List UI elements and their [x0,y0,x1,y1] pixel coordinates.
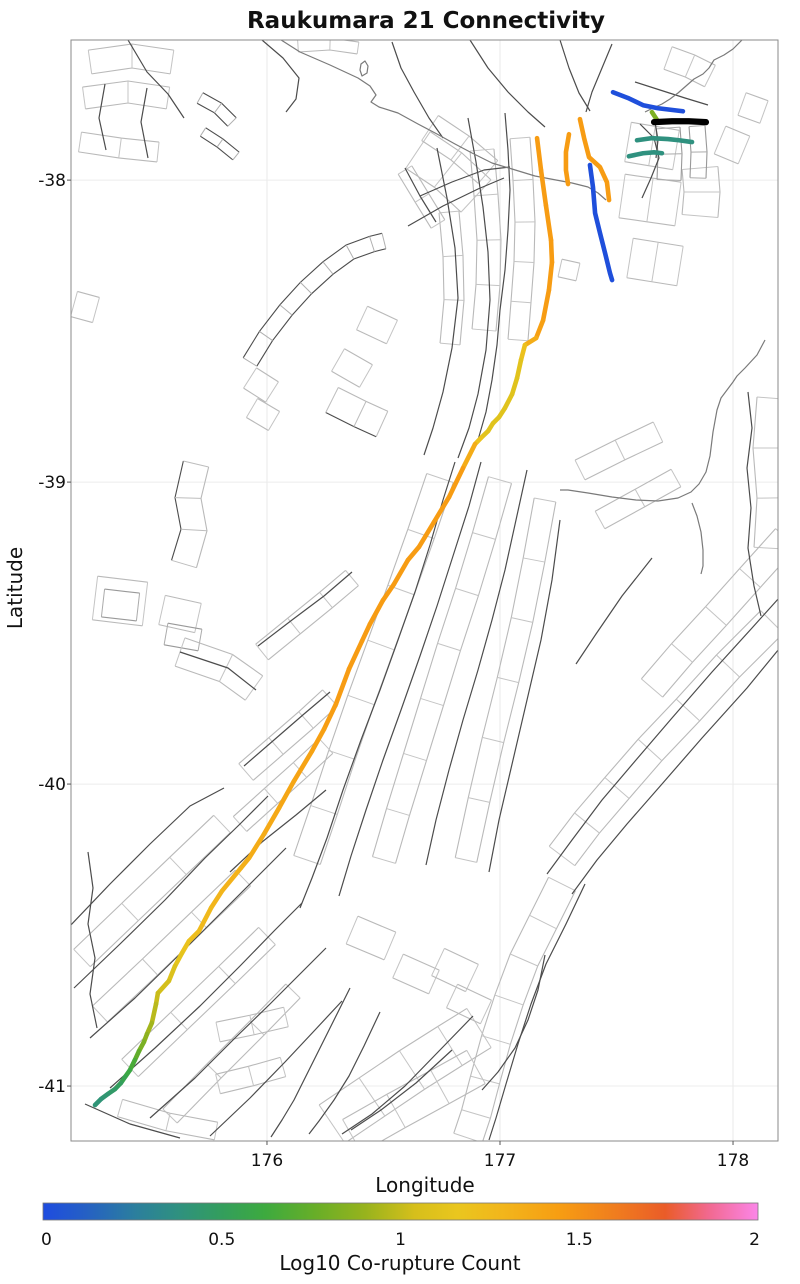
fault-strip [163,984,300,1123]
main-rupture-trace-segment [536,320,543,338]
fault-strip-rung [576,263,580,281]
fault-strip-rung [88,50,91,74]
fault-strip-rung [641,679,662,697]
x-tick-label: 178 [717,1151,749,1171]
fault-strip-rung [432,948,445,975]
fault-strip-edge [562,259,580,263]
fault-strip [454,877,576,1142]
fault-trace [258,572,352,646]
fault-strip-edge [664,69,705,86]
fault-strip-rung [534,498,556,502]
fault-trace [342,1016,473,1134]
fault-strip-rung [360,365,373,388]
fault-strip-edge [393,978,429,994]
fault-strip-rung [508,339,528,341]
fault-strip-rung [74,949,91,966]
fault-strip [88,44,173,74]
gridlines [71,40,778,1141]
fault-strip-rung [181,529,207,531]
fault-strip-rung [456,588,479,595]
main-rupture-trace-segment [370,600,383,624]
fault-strip [641,529,796,697]
colorbar-gradient [43,1203,758,1220]
fault-strip-edge [549,611,760,847]
fault-strip-rung [511,301,531,303]
fault-strip [664,47,715,87]
fault-strip-rung [615,440,625,460]
fault-strip-rung [370,236,375,251]
main-rupture-trace-segment [537,138,541,170]
fault-strip-rung [79,132,82,152]
fault-strip-rung [233,152,239,160]
fault-strip-edge [253,706,337,780]
fault-strip-rung [175,498,201,499]
fault-strip-rung [311,806,338,815]
fault-strip [175,638,263,700]
fault-strip-edge [346,944,384,960]
coastline [360,61,368,76]
fault-strip-edge [298,50,357,54]
fault-strip-edge [246,417,268,430]
fault-strip [216,1057,286,1093]
fault-strip-edge [672,47,715,66]
fault-strip-rung [676,699,699,721]
fault-strip-rung [672,644,693,663]
coastline [692,503,703,574]
fault-strip-rung [716,655,739,677]
fault-strip-edge [185,638,263,676]
fault-strip-rung [266,382,279,402]
fault-strip-rung [393,954,404,978]
fault-strip [256,570,359,659]
fault-strip-edge [216,1057,281,1074]
fault-strip-rung [510,137,530,138]
fault-trace [478,113,510,440]
fault-strip-rung [288,618,301,634]
fault-strip-rung [671,469,681,486]
fault-strip-edge [117,1117,214,1140]
fault-strip-rung [653,422,662,442]
fault-strip-rung [468,798,489,803]
rupture-orange-a [566,134,569,184]
fault-strip-edge [98,576,148,582]
fault-strip-edge [663,547,797,697]
fault-strip-edge [432,976,466,992]
main-rupture-trace-segment [517,360,521,378]
fault-strip-rung [294,855,321,864]
axis-tick-labels: 176177178-38-39-40-41 [38,171,749,1171]
fault-strip [689,125,707,178]
rupture-source-black [654,121,706,122]
rupture-teal-b-path [629,152,662,156]
fault-trace [110,903,302,1088]
fault-strip-rung [214,103,221,113]
fault-strip-edge [258,399,280,412]
fault-strip [326,387,388,436]
fault-strip [357,306,398,344]
fault-strip-edge [92,68,171,74]
fault-strip-edge [595,469,671,511]
fault-strip-edge [367,306,397,320]
fault-trace [230,790,326,872]
fault-strip-edge [746,93,768,101]
fault-strip-rung [472,329,496,331]
fault-strip-rung [776,529,797,548]
x-axis-label: Longitude [375,1173,474,1197]
fault-strip-rung [92,576,97,620]
fault-strip-rung [677,246,683,285]
fault-strip [372,477,511,864]
fault-strip-rung [638,739,662,761]
fault-strip-rung [219,966,236,983]
fault-strip-edge [332,371,360,387]
fault-trace [408,178,504,226]
fault-strip-edge [585,442,663,480]
fault-strip [122,927,276,1076]
fault-strip-rung [476,284,500,285]
fault-strip-edge [430,132,491,180]
fault-strip-edge [575,633,784,865]
main-rupture-trace-segment [543,290,549,320]
fault-strip [246,399,279,431]
x-tick-label: 177 [484,1151,516,1171]
fault-strip-rung [705,65,716,86]
fault-strip-rung [159,595,166,624]
fault-strip [79,132,160,162]
fault-strip-rung [549,877,576,890]
x-tick-label: 176 [251,1151,283,1171]
fault-trace [88,852,97,1028]
colorbar-tick-label: 0 [41,1230,52,1250]
fault-strip-edge [243,233,382,358]
fault-trace [576,558,652,664]
y-axis-label: Latitude [3,547,27,629]
fault-strip-rung [549,846,575,865]
rupture-teal-b [629,152,662,156]
fault-strip-edge [779,399,783,549]
fault-strip-rung [690,178,706,179]
fault-strip-edge [528,137,535,340]
rupture-teal-a [637,138,692,142]
rupture-olive-dash-path [652,112,657,120]
fault-strip [625,122,680,169]
fault-strip-rung [93,297,100,322]
fault-strip-edge [358,916,396,932]
fault-strip-rung [738,136,750,164]
fault-trace [635,82,708,105]
fault-strip-rung [239,764,253,781]
fault-strip-rung [119,138,122,158]
fault-strip-rung [368,640,394,650]
fault-trace [141,88,148,158]
fault-strip-rung [404,753,427,760]
main-rupture-trace-segment [521,345,525,360]
fault-strip [172,461,209,568]
fault-strip [74,815,231,966]
fault-strip-rung [117,1099,122,1116]
fault-strip-rung [332,349,345,372]
main-rupture-trace-segment [463,444,475,468]
fault-strip [619,174,681,226]
fault-strip-edge [79,152,157,162]
fault-strip-edge [138,945,275,1077]
fault-strip-edge [101,617,136,621]
fault-strip-edge [85,103,166,109]
fault-strip-rung [757,397,783,399]
fault-strip-rung [348,695,374,704]
fault-strip-rung [157,142,159,162]
y-tick-label: -40 [38,775,66,795]
fault-strip [244,368,279,402]
fault-trace [180,652,256,690]
fault-strip-rung [71,291,78,316]
fault-strip [92,576,147,626]
fault-strip-rung [216,1022,220,1042]
fault-strip [446,984,491,1024]
fault-strip-edge [361,1084,485,1153]
fault-strip-rung [706,607,727,626]
fault-strip-rung [619,174,625,218]
fault-strip-edge [605,487,681,529]
fault-strip-rung [627,238,633,277]
fault-trace [586,44,612,112]
y-tick-label: -39 [38,473,66,493]
main-rupture-trace-segment [383,584,394,600]
fault-strip-rung [197,93,203,103]
fault-strip [159,595,202,632]
fault-strip-rung [329,751,356,760]
fault-strip-rung [455,858,477,863]
fault-strip-rung [217,139,223,147]
rupture-olive-dash [652,112,657,120]
fault-strip-rung [398,166,412,174]
fault-strip-rung [219,655,232,682]
fault-strip [216,1007,288,1042]
fault-strip [346,916,396,960]
rupture-orange-a-path [566,134,569,184]
fault-strip [508,137,535,340]
fault-strip-rung [83,87,86,109]
fault-strip-rung [170,50,174,74]
fault-strip [738,93,768,124]
fault-strip-edge [244,388,266,402]
fault-strip-edge [396,483,512,863]
fault-strip-rung [635,489,645,507]
main-rupture-trace-segment [551,240,552,262]
fault-strip-rung [530,915,557,928]
fault-trace [262,40,299,112]
fault-strip-edge [90,833,230,967]
main-rupture-trace-segment [312,729,324,751]
fault-network-background [68,38,796,1153]
fault-strip-rung [462,1110,491,1118]
fault-strip-rung [510,954,538,966]
fault-strip-edge [159,625,195,633]
fault-strip-rung [183,461,208,467]
fault-strip-edge [197,103,228,126]
fault-strip-rung [595,511,605,529]
fault-trace [128,40,184,118]
fault-strip-edge [459,211,464,345]
fault-strip-rung [357,42,359,54]
rupture-teal-a-path [637,138,692,142]
fault-trace [458,118,490,458]
colorbar-tick-label: 2 [749,1230,760,1250]
fault-strip-edge [77,291,99,297]
fault-strip-rung [357,306,368,330]
fault-strip-rung [136,593,139,621]
y-tick-label: -41 [38,1077,66,1097]
fault-trace [68,788,224,928]
main-rupture-trace-segment [512,378,517,394]
fault-strip-rung [372,857,395,864]
fault-strip-edge [105,589,140,593]
fault-strip-edge [200,136,233,160]
fault-strip-edge [403,954,439,970]
fault-strip-rung [675,182,681,226]
fault-strip-rung [472,533,495,540]
fault-strip-edge [345,1048,491,1144]
fault-strip-rung [514,262,534,263]
main-rupture-trace-segment [546,205,551,240]
fault-strip-rung [575,460,585,480]
fault-strip [470,149,501,331]
fault-strip [714,126,750,164]
fault-strip-rung [268,412,279,431]
main-rupture-trace-segment [249,834,264,858]
fault-strip-rung [354,401,366,426]
fault-strip-rung [382,233,386,249]
fault-strip-rung [166,1113,170,1131]
fault-strip-rung [440,343,460,345]
fault-strip-rung [299,712,314,728]
fault-strip-rung [446,984,457,1008]
plot-border [71,40,778,1141]
fault-strip-rung [243,358,257,366]
fault-strip-rung [171,1012,188,1029]
fault-trace [747,392,761,616]
fault-strip-rung [172,560,197,567]
fault-strip-rung [384,932,396,960]
fault-strip-rung [376,411,388,436]
plot-frame [67,40,778,1145]
fault-strip-rung [467,1008,491,1047]
fault-strip-edge [558,277,576,281]
fault-strip-rung [264,789,277,804]
fault-strip-edge [458,984,492,1000]
fault-trace [470,40,545,127]
fault-strip-edge [81,132,159,142]
fault-strip-rung [244,368,257,388]
fault-strip-rung [740,569,761,588]
fault-strip [332,349,373,388]
fault-strip-rung [673,130,680,169]
fault-strip-rung [101,589,104,617]
fault-strip [117,1099,217,1139]
fault-strip-rung [387,320,398,344]
fault-strip-rung [682,215,718,218]
fault-strip [101,589,139,621]
fault-trace [271,988,350,1137]
fault-strip-rung [466,964,479,991]
fault-strip [627,238,683,285]
connectivity-map: 176177178-38-39-40-41 00.511.52 Raukumar… [0,0,800,1284]
main-rupture-trace-segment [541,170,546,205]
fault-strip-rung [431,220,445,228]
fault-strip-rung [738,93,746,116]
fault-strip-rung [443,255,463,256]
fault-strip-rung [170,857,187,874]
fault-strip-rung [495,995,523,1005]
fault-strip [200,128,239,160]
fault-strip-edge [439,213,444,343]
fault-strip-rung [714,126,726,154]
fault-strip-rung [511,618,533,623]
fault-strip-rung [300,282,311,293]
fault-strip-rung [575,813,600,833]
fault-strip-edge [123,1099,218,1122]
fault-strip-rung [477,240,501,241]
fault-strip-rung [163,1109,177,1123]
fault-strip [83,81,170,109]
fault-strip-rung [319,1105,345,1143]
main-rupture-trace-segment [549,262,552,290]
fault-strip-edge [165,595,201,603]
fault-strip-edge [641,529,775,679]
fault-strip-rung [248,1066,253,1085]
rupture-source-black-path [654,121,706,122]
main-rupture-trace-segment [211,891,222,908]
fault-strip [549,611,783,866]
fault-strip-rung [605,778,629,799]
fault-strip-rung [429,970,440,994]
fault-strip-rung [122,903,139,920]
fault-strip-edge [74,815,214,949]
rupture-north-blue-path [613,92,683,111]
fault-strip-rung [246,399,257,418]
fault-strip-rung [438,643,461,650]
fault-strip-rung [497,677,518,682]
colorbar-tick-label: 0.5 [208,1230,235,1250]
fault-strip-rung [421,698,444,705]
colorbar-label: Log10 Co-rupture Count [279,1251,520,1275]
main-rupture-trace-segment [349,641,362,669]
fault-strip-rung [444,300,464,301]
main-rupture-trace-segment [279,781,294,808]
fault-strip-edge [71,317,93,323]
fault-strip-edge [454,877,549,1133]
fault-strip-rung [166,87,169,109]
fault-trace [560,40,590,111]
main-rupture-trace-segment [152,1004,156,1023]
fault-trace [339,462,481,896]
fault-strip-rung [760,101,768,124]
fault-trace [482,955,545,1090]
fault-strip-edge [177,998,300,1123]
fault-strip-edge [726,126,750,136]
fault-strip [243,233,386,366]
fault-strip [558,259,580,281]
fault-strip [197,93,236,126]
fault-strip-rung [256,644,269,660]
fault-strip-rung [558,259,562,277]
fault-strip-edge [372,477,488,857]
main-rupture-trace-segment [158,981,169,993]
fault-strip-rung [228,118,236,126]
main-rupture-trace-segment [505,394,512,408]
page-title: Raukumara 21 Connectivity [247,8,605,34]
main-rupture-trace-segment [169,966,175,981]
